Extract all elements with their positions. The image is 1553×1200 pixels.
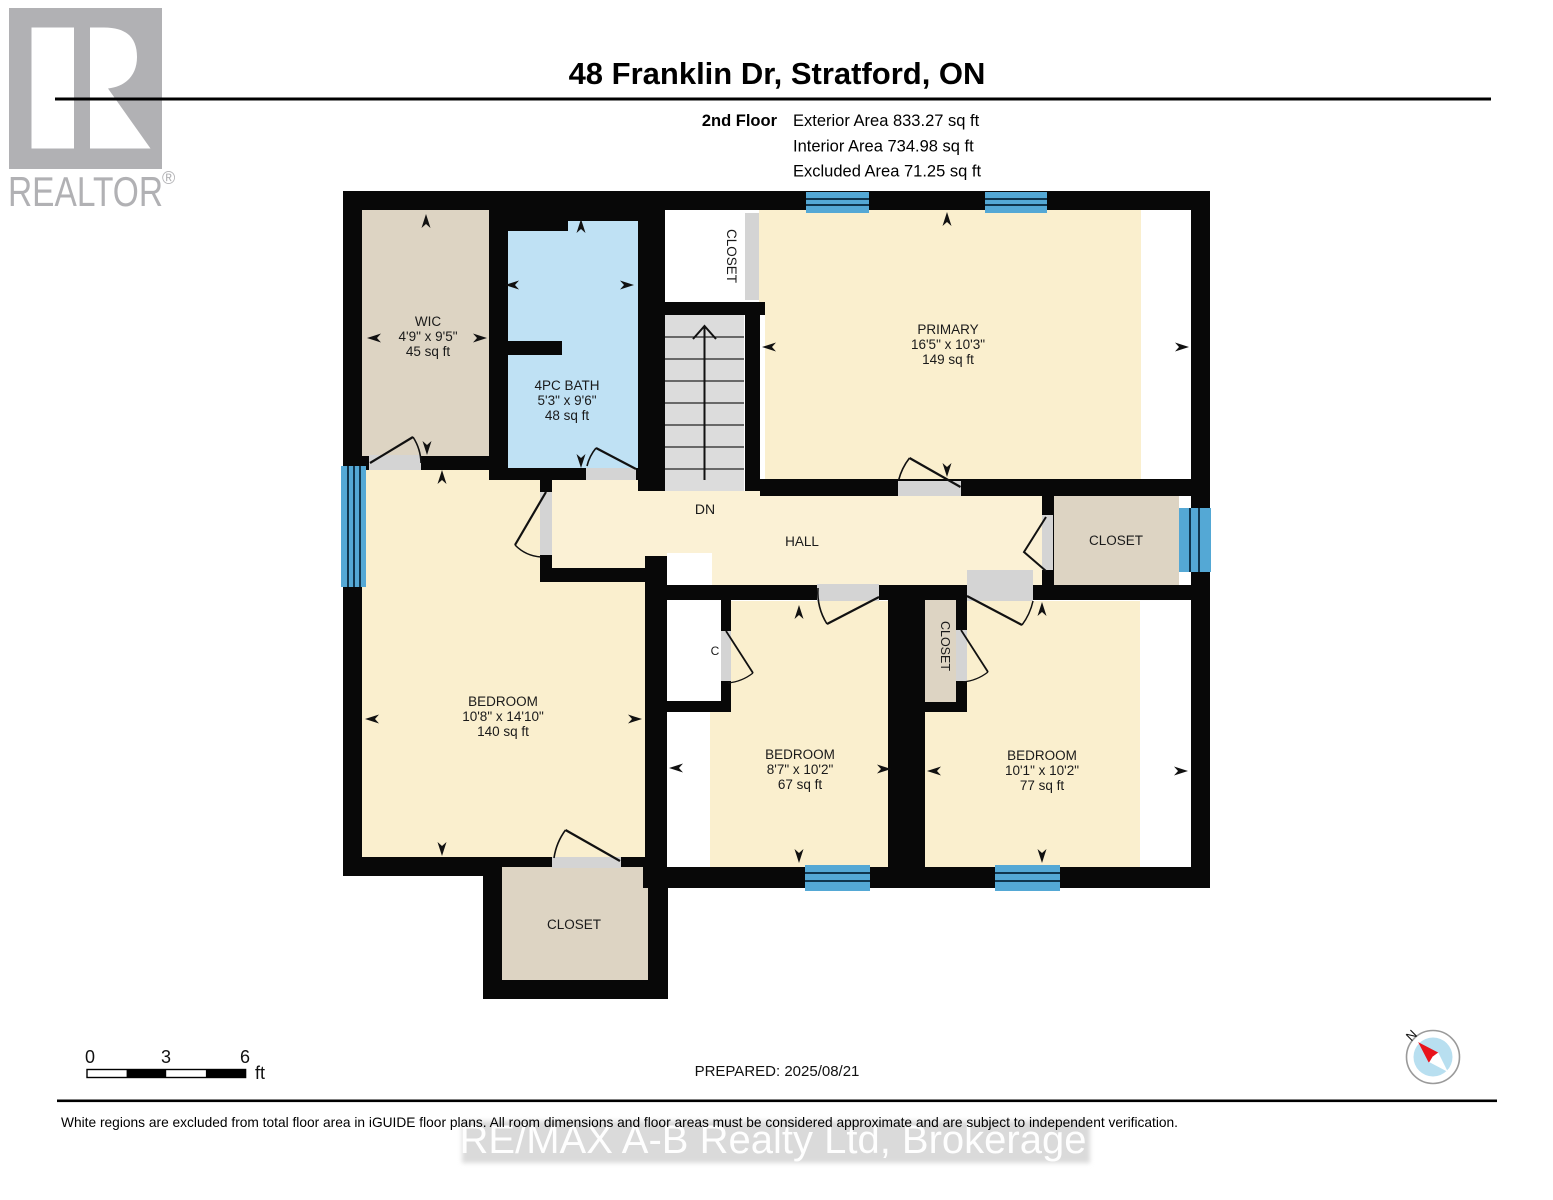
svg-text:DN: DN (695, 501, 715, 517)
svg-text:6: 6 (240, 1047, 250, 1067)
svg-text:10'8" x 14'10": 10'8" x 14'10" (462, 709, 544, 724)
svg-text:BEDROOM: BEDROOM (468, 694, 538, 709)
svg-text:5'3" x 9'6": 5'3" x 9'6" (537, 393, 596, 408)
svg-text:C: C (711, 644, 720, 658)
svg-text:CLOSET: CLOSET (1089, 533, 1143, 548)
svg-text:45 sq ft: 45 sq ft (406, 344, 451, 359)
svg-text:67 sq ft: 67 sq ft (778, 777, 823, 792)
svg-text:REALTOR: REALTOR (8, 168, 163, 215)
svg-text:Interior Area 734.98 sq ft: Interior Area 734.98 sq ft (793, 138, 974, 156)
svg-text:PRIMARY: PRIMARY (917, 322, 978, 337)
svg-text:3: 3 (161, 1047, 171, 1067)
svg-text:48 sq ft: 48 sq ft (545, 408, 590, 423)
svg-text:Excluded Area 71.25 sq ft: Excluded Area 71.25 sq ft (793, 163, 981, 181)
svg-text:HALL: HALL (785, 534, 819, 549)
svg-text:77 sq ft: 77 sq ft (1020, 778, 1065, 793)
svg-text:4PC BATH: 4PC BATH (534, 378, 599, 393)
svg-text:8'7" x 10'2": 8'7" x 10'2" (767, 762, 834, 777)
svg-text:10'1" x 10'2": 10'1" x 10'2" (1005, 763, 1079, 778)
svg-text:Exterior Area 833.27 sq ft: Exterior Area 833.27 sq ft (793, 112, 980, 130)
svg-text:2nd Floor: 2nd Floor (702, 112, 778, 130)
svg-text:48 Franklin Dr, Stratford, ON: 48 Franklin Dr, Stratford, ON (569, 56, 986, 91)
svg-text:BEDROOM: BEDROOM (765, 747, 835, 762)
svg-text:®: ® (162, 168, 175, 188)
svg-text:149 sq ft: 149 sq ft (922, 352, 974, 367)
svg-text:4'9" x 9'5": 4'9" x 9'5" (398, 329, 457, 344)
svg-text:0: 0 (85, 1047, 95, 1067)
svg-text:140 sq ft: 140 sq ft (477, 724, 529, 739)
svg-text:White regions are excluded fro: White regions are excluded from total fl… (61, 1114, 1178, 1130)
svg-text:CLOSET: CLOSET (547, 917, 601, 932)
svg-text:CLOSET: CLOSET (938, 621, 952, 671)
svg-text:PREPARED: 2025/08/21: PREPARED: 2025/08/21 (695, 1063, 860, 1080)
svg-text:16'5" x 10'3": 16'5" x 10'3" (911, 337, 985, 352)
svg-text:CLOSET: CLOSET (724, 229, 739, 283)
svg-text:BEDROOM: BEDROOM (1007, 748, 1077, 763)
svg-text:WIC: WIC (415, 314, 441, 329)
svg-text:ft: ft (255, 1063, 265, 1083)
